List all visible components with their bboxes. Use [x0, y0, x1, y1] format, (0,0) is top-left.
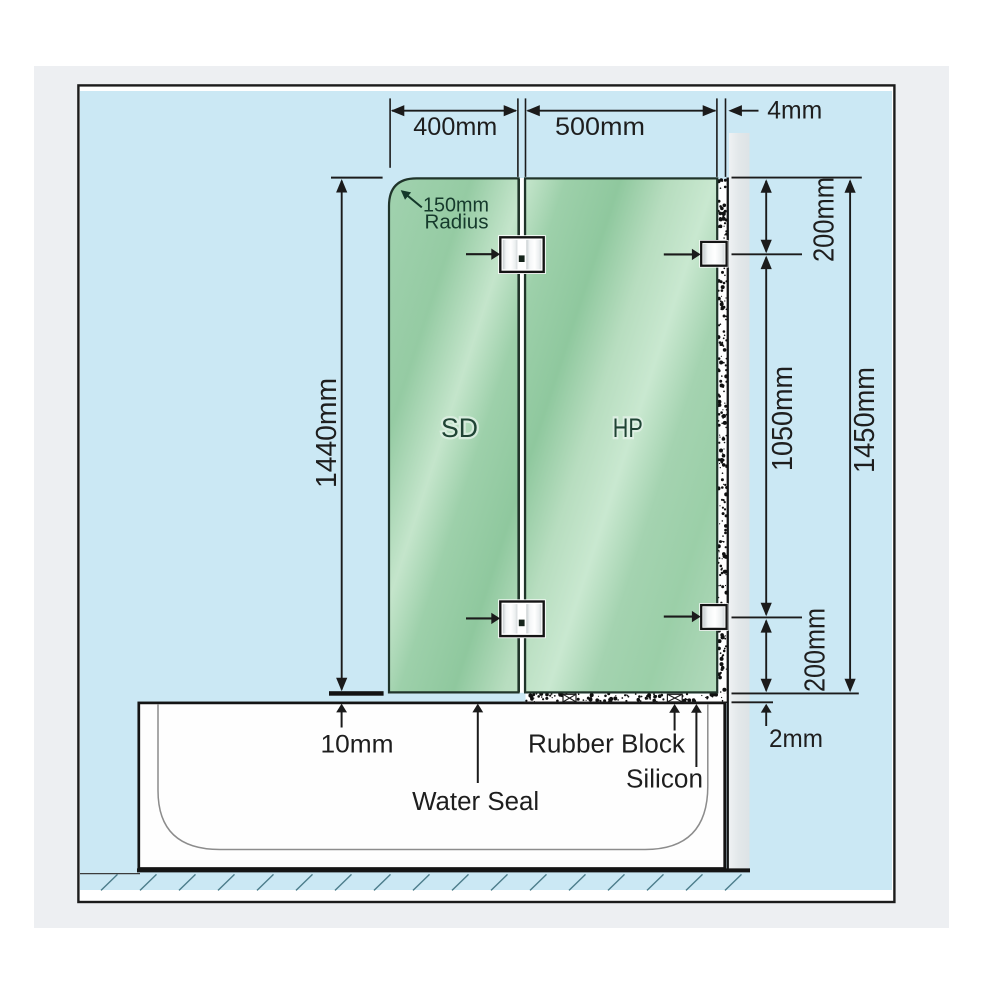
- svg-text:Silicon: Silicon: [626, 766, 703, 794]
- svg-text:HP: HP: [613, 413, 643, 443]
- svg-text:4mm: 4mm: [767, 97, 822, 125]
- svg-text:200mm: 200mm: [800, 608, 832, 692]
- svg-text:Rubber Block: Rubber Block: [528, 731, 685, 759]
- svg-text:SD: SD: [441, 413, 478, 443]
- svg-text:1440mm: 1440mm: [311, 378, 343, 488]
- svg-text:1050mm: 1050mm: [767, 366, 799, 471]
- svg-text:Radius: Radius: [425, 212, 489, 234]
- svg-text:400mm: 400mm: [413, 113, 497, 141]
- svg-text:1450mm: 1450mm: [849, 367, 881, 473]
- svg-text:200mm: 200mm: [808, 177, 840, 262]
- svg-text:10mm: 10mm: [321, 731, 394, 759]
- svg-text:Water Seal: Water Seal: [412, 788, 539, 816]
- svg-text:2mm: 2mm: [769, 725, 823, 753]
- svg-text:500mm: 500mm: [555, 113, 645, 141]
